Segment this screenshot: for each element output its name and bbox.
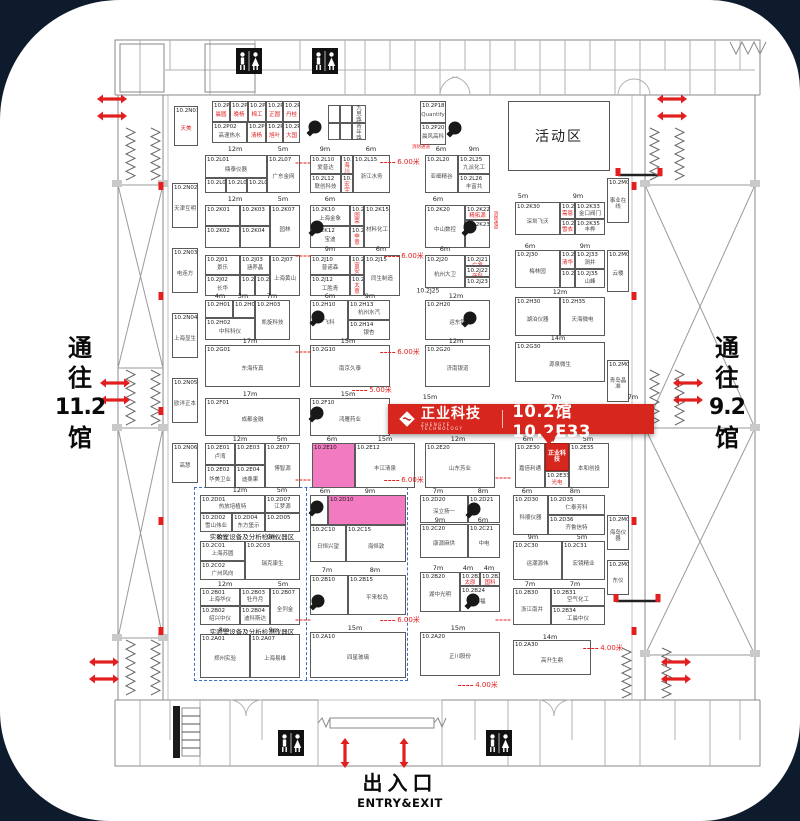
- aisle-width-marker: 4.00米: [458, 680, 498, 690]
- dimension-label: 12m: [233, 486, 248, 494]
- booth-10.2D04: 10.2D04东方堡示: [232, 513, 265, 532]
- booth-name: 平来松岛: [349, 583, 405, 615]
- booth-name: 科顺仪器: [514, 503, 547, 535]
- booth-name: 天美: [175, 114, 197, 146]
- dimension-label: 12m: [228, 145, 243, 153]
- dimension-label: 15m: [341, 337, 356, 345]
- booth-name: 景乐: [206, 263, 239, 275]
- zone-label: 实验室设备及分析检测仪器区: [210, 531, 295, 541]
- spring-coil-symbol: [675, 370, 684, 425]
- booth-10.2P02: 10.2P02高速热水: [212, 122, 247, 143]
- dimension-label: 4m: [484, 564, 494, 572]
- booth-name: 湖泊仪器: [516, 305, 559, 336]
- dimension-label: 12m: [228, 195, 243, 203]
- dimension-label: 5m: [277, 486, 287, 494]
- booth-id: 10.2K03: [241, 206, 269, 213]
- pillar-icon: [312, 311, 325, 324]
- dimension-label: 4m: [215, 292, 225, 300]
- aisle-width-marker: [496, 478, 511, 479]
- booth-10.2E07: 10.2E07博智源: [265, 443, 300, 488]
- spring-coil-symbol: [662, 648, 671, 698]
- booth-name: 雪山伟业: [201, 521, 231, 532]
- booth-name: 正川股份: [421, 640, 499, 676]
- booth-name: 材料化工: [365, 213, 389, 248]
- booth-name: 鼎泰仪器: [206, 163, 266, 178]
- booth-10.2L03: 10.2L03: [226, 178, 247, 193]
- booth-id: 10.2B10: [311, 576, 347, 583]
- fire-point-marker: [656, 594, 661, 602]
- dimension-label: 6m: [433, 195, 443, 203]
- booth-10.2L01: 10.2L01鼎泰仪器: [205, 155, 267, 178]
- pillar-icon: [311, 221, 324, 234]
- spring-coil-symbol: [126, 370, 135, 425]
- booth-name: 丹桂: [284, 109, 299, 122]
- booth-10.2J32: 10.2J32清华: [560, 250, 575, 269]
- booth: 九思路: [352, 105, 366, 123]
- booth-name: 同生制造: [365, 263, 399, 296]
- booth-name: 涵养晶: [241, 263, 269, 275]
- aisle-width-marker: [296, 352, 311, 353]
- booth-10.2J10: 10.2J10普诺森: [310, 255, 350, 275]
- pillar-icon: [464, 221, 477, 234]
- booth-10.2J20: 10.2J20杭州大卫: [425, 255, 465, 288]
- booth-id: 10.2H01: [206, 301, 232, 308]
- spring-coil-symbol: [622, 648, 631, 698]
- booth-name: 上海显生: [173, 321, 197, 358]
- booth-10.2K32: 10.2K32需恩: [560, 202, 575, 219]
- booth-name: 高升生鼎: [514, 648, 590, 675]
- booth: [328, 105, 340, 123]
- fire-point-marker: [159, 407, 164, 415]
- zone-label: 10.2J25: [417, 288, 440, 295]
- dimension-label: 12m: [451, 435, 466, 443]
- booth-name: 九思路: [353, 106, 365, 123]
- dimension-label: 7m: [322, 566, 332, 574]
- booth-10.2D10: 10.2D10: [328, 495, 406, 525]
- booth-10.2H35: 10.2H35天海微电: [560, 297, 605, 336]
- booth-name: 丰富共: [459, 182, 489, 193]
- aisle-width-marker: 6.00米: [384, 475, 424, 485]
- booth-10.2P01: 10.2P01晨圆: [212, 101, 230, 122]
- booth-10.2J23: 10.2J23: [465, 277, 490, 288]
- zhengye-logo-icon: [398, 410, 416, 428]
- booth-name: 天津互明: [173, 191, 197, 228]
- dimension-label: 8m: [370, 566, 380, 574]
- booth-10.2P07: 10.2P07正圆: [266, 101, 283, 122]
- booth-id: 10.2D05: [266, 514, 299, 521]
- dimension-label: 7m: [525, 580, 535, 588]
- booth-10.2L12: 10.2L12联创科技: [310, 174, 341, 193]
- double-arrow-icon: [97, 95, 127, 104]
- dimension-label: 6m: [440, 245, 450, 253]
- booth-id: 10.2L04: [248, 179, 266, 186]
- booth-10.2J15: 10.2J15同生制造: [364, 255, 400, 296]
- banner-pointer: [540, 433, 558, 445]
- booth-id: 10.2J23: [466, 278, 489, 285]
- booth-name: 晨圆: [213, 109, 229, 122]
- booth-name: 云楼: [608, 258, 628, 292]
- booth-name: 清杨: [248, 130, 265, 143]
- booth-name: 精拓源: [466, 213, 489, 220]
- aisle-width-marker: [296, 256, 311, 257]
- entrance-cn: 出入口: [320, 767, 480, 796]
- fire-point-marker: [632, 292, 637, 300]
- dimension-label: 5m: [278, 195, 288, 203]
- booth-10.2L26: 10.2L26丰富共: [458, 174, 490, 193]
- booth-10.2N02: 10.2N02天津互明: [172, 183, 198, 228]
- brand-name: 正业科技: [421, 407, 494, 421]
- booth-name: 正圆: [267, 109, 282, 122]
- booth-name: 爱普达: [311, 163, 340, 174]
- booth-id: 10.2L02: [206, 179, 225, 186]
- booth-10.2B30: 10.2B30浙江南井: [513, 588, 551, 625]
- booth-name: 华美卫业: [206, 473, 234, 488]
- booth-name: 山东芳业: [426, 451, 494, 488]
- booth-name: 杭州大卫: [426, 263, 464, 288]
- booth-name: 上海苏圆: [201, 549, 244, 561]
- booth-10.2K07: 10.2K07园林: [270, 205, 300, 248]
- booth-name: 广东金网: [268, 163, 299, 193]
- activity-area-label: 活动区: [535, 126, 583, 146]
- booth-10.2P06: 10.2P06旭叶: [266, 122, 283, 143]
- fire-point-marker: [159, 292, 164, 300]
- booth-10.2A07: 10.2A07上海易维: [250, 634, 300, 678]
- restroom-icon: [236, 48, 262, 74]
- dimension-label: 12m: [218, 580, 233, 588]
- booth-10.2K04: 10.2K04: [240, 226, 270, 248]
- booth-10.2C02: 10.2C02广州风向: [200, 561, 245, 580]
- booth-id: 10.2D10: [329, 496, 405, 503]
- booth-10.2C21: 10.2C21中电: [468, 524, 500, 558]
- location-banner: 正业科技 ZHENGYE TECHNOLOGY 10.2馆 10.2E33: [388, 404, 654, 434]
- booth-10.2B03: 10.2B03牡丹月: [240, 588, 270, 606]
- pillar-icon: [312, 595, 325, 608]
- spring-coil-symbol: [151, 370, 160, 425]
- booth-id: 10.2J05: [256, 276, 269, 283]
- booth-id: 10.2E03: [236, 444, 264, 451]
- booth-10.2P18: 10.2P18Quantify: [420, 101, 446, 123]
- aisle-width-marker: [296, 620, 311, 621]
- pillar-icon: [311, 407, 324, 420]
- booth-name: 海恒敦: [347, 533, 405, 562]
- booth-name: 电连方: [173, 256, 197, 293]
- booth-name: 工晨中仪: [552, 614, 604, 625]
- booth-name: 高速热水: [213, 130, 246, 143]
- booth-10.2J34: 10.2J34: [560, 269, 575, 288]
- booth-10.2B34: 10.2B34工晨中仪: [551, 606, 605, 625]
- booth-10.2M05: 10.2M05东仪: [607, 560, 629, 595]
- booth-name: 丰桦: [576, 227, 604, 235]
- booth-name: 博智源: [266, 451, 299, 488]
- dimension-label: 6m: [525, 242, 535, 250]
- booth-name: 上海黄山: [271, 263, 299, 296]
- booth-10.2A01: 10.2A01郑州实验: [200, 634, 250, 678]
- portal-text: 通: [54, 333, 106, 363]
- portal-text: 9.2: [702, 393, 752, 423]
- restroom-icon: [312, 48, 338, 74]
- booth-id: 10.2K04: [241, 227, 269, 234]
- booth-name: 事业在线: [608, 186, 628, 223]
- booth: 正业科技: [545, 443, 569, 471]
- booth-id: 10.2K02: [206, 227, 239, 234]
- booth-10.2L13: 10.2L13海川: [341, 155, 353, 174]
- booth-10.2D02: 10.2D02雪山伟业: [200, 513, 232, 532]
- booth-10.2L02: 10.2L02: [205, 178, 226, 193]
- dimension-label: 9m: [528, 533, 538, 541]
- booth-10.2J03: 10.2J03涵养晶: [240, 255, 270, 275]
- booth-10.2E03: 10.2E03: [235, 443, 265, 465]
- fire-point-marker: [159, 182, 164, 190]
- double-arrow-icon: [89, 675, 119, 684]
- booth-10.2B02: 10.2B02绍兴中仪: [200, 606, 240, 625]
- double-arrow-icon: [661, 658, 691, 667]
- booth-id: 10.2L03: [227, 179, 246, 186]
- booth-10.2A30: 10.2A30高升生鼎: [513, 640, 591, 675]
- portal-text: 11.2: [54, 393, 106, 423]
- fire-point-marker: [632, 182, 637, 190]
- booth-name: 凯旋科技: [256, 308, 289, 340]
- entrance-en: ENTRY&EXIT: [320, 796, 480, 810]
- lab-zone-divider: [306, 488, 307, 680]
- pillar-icon: [449, 122, 462, 135]
- booth-name: 九派化工: [459, 163, 489, 174]
- booth-name: 申意: [351, 234, 363, 248]
- booth-10.2G01: 10.2G01东海传真: [205, 345, 300, 387]
- fire-point-marker: [658, 168, 663, 176]
- dimension-label: 5m: [278, 145, 288, 153]
- booth-10.2J01: 10.2J01景乐: [205, 255, 240, 275]
- fire-point-marker: [616, 168, 621, 176]
- aisle-width-marker: 4.00米: [583, 643, 623, 653]
- booth-10.2J30: 10.2J30梅林园: [515, 250, 560, 288]
- booth: [340, 105, 352, 123]
- booth: 青年路: [352, 123, 366, 140]
- booth-name: 上海易维: [251, 642, 299, 678]
- booth-10.2H01: 10.2H01: [205, 300, 233, 318]
- portal-text: 馆: [54, 423, 106, 453]
- booth-name: 康源麻供: [421, 532, 467, 558]
- restroom-icon: [486, 730, 512, 756]
- dimension-label: 6m: [325, 195, 335, 203]
- booth-name: 仁泰芳科: [549, 503, 604, 515]
- dimension-label: 12m: [553, 288, 568, 296]
- booth-10.2C01: 10.2C01上海苏圆: [200, 541, 245, 561]
- booth-10.2M02: 10.2M02云楼: [607, 250, 629, 292]
- dimension-label: 12m: [449, 292, 464, 300]
- booth-name: 清华: [561, 258, 574, 269]
- booth-name: 海岛仪器: [608, 523, 628, 550]
- dimension-label: 6m: [320, 487, 330, 495]
- booth-name: 运潮源伟: [514, 549, 561, 580]
- pillar-icon: [311, 501, 324, 514]
- booth-10.2L25: 10.2L25九派化工: [458, 155, 490, 174]
- fire-point-marker: [632, 517, 637, 525]
- booth-10.2L10: 10.2L10爱普达: [310, 155, 341, 174]
- booth-10.2H03: 10.2H03凯旋科技: [255, 300, 290, 340]
- booth-name: 天海微电: [561, 305, 604, 336]
- booth-name: 空气化工: [552, 596, 604, 606]
- hall-floorplan: 10.2P01晨圆10.2P03晚杨10.2P05棉工10.2P07正圆10.2…: [0, 0, 800, 821]
- double-arrow-icon: [400, 738, 409, 768]
- booth-name: 光电: [546, 479, 568, 488]
- booth-10.2J21: 10.2J21广发: [465, 255, 490, 266]
- booth-name: 广州风向: [201, 569, 244, 580]
- booth-10.2K01: 10.2K01: [205, 205, 240, 226]
- booth-name: 四星玻璃: [311, 640, 405, 678]
- booth-name: 山峰: [576, 277, 604, 288]
- booth-10.2K33: 10.2K33金口阀门: [575, 202, 605, 219]
- booth-10.2E02: 10.2E02华美卫业: [205, 465, 235, 488]
- dimension-label: 15m: [423, 393, 438, 401]
- aisle-width-marker: 6.00米: [384, 251, 424, 261]
- booth-name: 大国: [284, 130, 299, 143]
- double-arrow-icon: [661, 675, 691, 684]
- booth-name: 高慧: [173, 451, 197, 483]
- booth-10.2K20: 10.2K20中山数控: [425, 205, 465, 248]
- dimension-label: 17m: [243, 390, 258, 398]
- dimension-label: 6m: [366, 145, 376, 153]
- double-arrow-icon: [673, 396, 703, 405]
- booth: [328, 123, 340, 140]
- dimension-label: 5m: [577, 533, 587, 541]
- booth-name: 绍兴中仪: [201, 614, 239, 625]
- aisle-width-marker: 6.00米: [380, 615, 420, 625]
- booth-10.2K13: 10.2K13国荣: [350, 205, 364, 226]
- booth-name: 南京久泰: [311, 353, 389, 387]
- double-arrow-icon: [657, 95, 687, 104]
- booth-10.2K15: 10.2K15材料化工: [364, 205, 390, 248]
- dimension-label: 9m: [365, 292, 375, 300]
- dimension-label: 15m: [378, 435, 393, 443]
- booth-name: 太意: [351, 283, 363, 296]
- dimension-label: 15m: [451, 624, 466, 632]
- booth-name: 中电: [469, 532, 499, 558]
- booth-name: 日恒兴望: [311, 533, 345, 562]
- booth-name: 涧井: [576, 258, 604, 269]
- aisle-width-marker: [496, 620, 511, 621]
- dimension-label: 8m: [570, 487, 580, 495]
- dimension-label: 9m: [580, 242, 590, 250]
- aisle-width-marker: [296, 163, 311, 164]
- booth-10.2J35: 10.2J35山峰: [575, 269, 605, 288]
- dimension-label: 8m: [478, 487, 488, 495]
- dimension-label: 7m: [433, 487, 443, 495]
- booth-10.2G10: 10.2G10南京久泰: [310, 345, 390, 387]
- booth-10.2E33: 10.2E33光电: [545, 471, 569, 488]
- booth-name: 热放培植特: [201, 503, 264, 513]
- booth-10.2M01: 10.2M01事业在线: [607, 178, 629, 223]
- booth-name: Quantify: [421, 109, 445, 123]
- dimension-label: 12m: [233, 435, 248, 443]
- booth-10.2B22: 10.2B22太原: [460, 572, 480, 586]
- booth-10.2C10: 10.2C10日恒兴望: [310, 525, 346, 562]
- double-arrow-icon: [657, 112, 687, 121]
- booth-name: 迪科斯达: [241, 614, 269, 625]
- dimension-label: 6m: [436, 145, 446, 153]
- booth-10.2H05: 10.2H05: [233, 300, 255, 318]
- booth-10.2N05: 10.2N05欧洋正本: [172, 378, 198, 423]
- dimension-label: 9m: [469, 145, 479, 153]
- booth-10.2K35: 10.2K35丰桦: [575, 219, 605, 235]
- booth-name: 嘉倍利通: [516, 451, 544, 488]
- booth-name: 梅林园: [516, 258, 559, 288]
- booth-10.2K30: 10.2K30深圳飞沃: [515, 202, 560, 235]
- booth-10.2C31: 10.2C31宏镜精业: [562, 541, 605, 580]
- booth-name: 宏宇: [342, 182, 352, 194]
- dimension-label: 14m: [551, 334, 566, 342]
- portal-right-9-2: 通往9.2馆: [702, 333, 752, 453]
- double-arrow-icon: [89, 658, 119, 667]
- dimension-label: 14m: [543, 633, 558, 641]
- booth-name: 东海传真: [206, 353, 299, 387]
- booth-name: 上海华仪: [201, 596, 239, 606]
- booth-10.2P09: 10.2P09丹桂: [283, 101, 300, 122]
- dimension-label: 5m: [277, 435, 287, 443]
- dimension-label: 6m: [478, 516, 488, 524]
- booth-name: 迪桑果: [236, 473, 264, 488]
- booth-10.2E01: 10.2E01卢湾: [205, 443, 235, 465]
- booth-id: 10.2J34: [561, 270, 574, 277]
- double-arrow-icon: [341, 738, 350, 768]
- zone-label: 实验室设备及分析检测仪器区: [210, 626, 295, 636]
- pillar-icon: [464, 312, 477, 325]
- booth-name: 富安达: [351, 263, 363, 276]
- booth-10.2E35: 10.2E35本和创投: [569, 443, 609, 488]
- pillar-icon: [467, 594, 480, 607]
- double-arrow-icon: [97, 112, 127, 121]
- booth-10.2P03: 10.2P03晚杨: [230, 101, 248, 122]
- spring-coil-symbol: [151, 640, 160, 695]
- booth-10.2N03: 10.2N03电连方: [172, 248, 198, 293]
- portal-text: 往: [54, 363, 106, 393]
- booth-10.2J13: 10.2J13富安达: [350, 255, 364, 275]
- floorplan-page: 10.2P01晨圆10.2P03晚杨10.2P05棉工10.2P07正圆10.2…: [0, 0, 800, 821]
- dimension-label: 15m: [348, 624, 363, 632]
- booth-10.2D36: 10.2D36齐鲁信特: [548, 515, 605, 535]
- booth-name: 浙江南井: [514, 596, 550, 625]
- dimension-label: 5m: [278, 580, 288, 588]
- booth-10.2B04: 10.2B04迪科斯达: [240, 606, 270, 625]
- booth-name: 普诺森: [311, 263, 349, 275]
- booth-10.2A10: 10.2A10四星玻璃: [310, 632, 406, 678]
- booth-10.2J14: 10.2J14太意: [350, 275, 364, 296]
- booth-name: 郑州实验: [201, 642, 249, 678]
- booth-10.2E30: 10.2E30嘉倍利通: [515, 443, 545, 488]
- aisle-width-marker: 6.00米: [380, 347, 420, 357]
- booth-10.2D05: 10.2D05: [265, 513, 300, 532]
- booth: [340, 123, 352, 140]
- dimension-label: 6m: [325, 292, 335, 300]
- dimension-label: 12m: [449, 337, 464, 345]
- booth-10.2H13: 10.2H13杭州水汽: [348, 300, 390, 320]
- booth-10.2N04: 10.2N04上海显生: [172, 313, 198, 358]
- booth-10.2K02: 10.2K02: [205, 226, 240, 248]
- dimension-label: 17m: [243, 337, 258, 345]
- booth-10.2M03: 10.2M03青岛晶准: [607, 360, 629, 402]
- booth-10.2G30: 10.2G30源泉微生: [515, 342, 605, 382]
- booth-10.2J07: 10.2J07上海黄山: [270, 255, 300, 296]
- booth-10.2D30: 10.2D30科顺仪器: [513, 495, 548, 535]
- booth-name: 宏镜精业: [563, 549, 604, 580]
- booth-name: 园林: [271, 213, 299, 248]
- dimension-label: 9m: [325, 245, 335, 253]
- booth-10.2P20: 10.2P20晨风高科: [420, 123, 446, 145]
- booth-id: 10.2E10: [313, 444, 354, 451]
- booth-10.2K03: 10.2K03: [240, 205, 270, 226]
- booth-10.2C30: 10.2C30运潮源伟: [513, 541, 562, 580]
- booth-10.2J22: 10.2J22商科: [465, 266, 490, 277]
- booth-name: 青岛晶准: [608, 368, 628, 402]
